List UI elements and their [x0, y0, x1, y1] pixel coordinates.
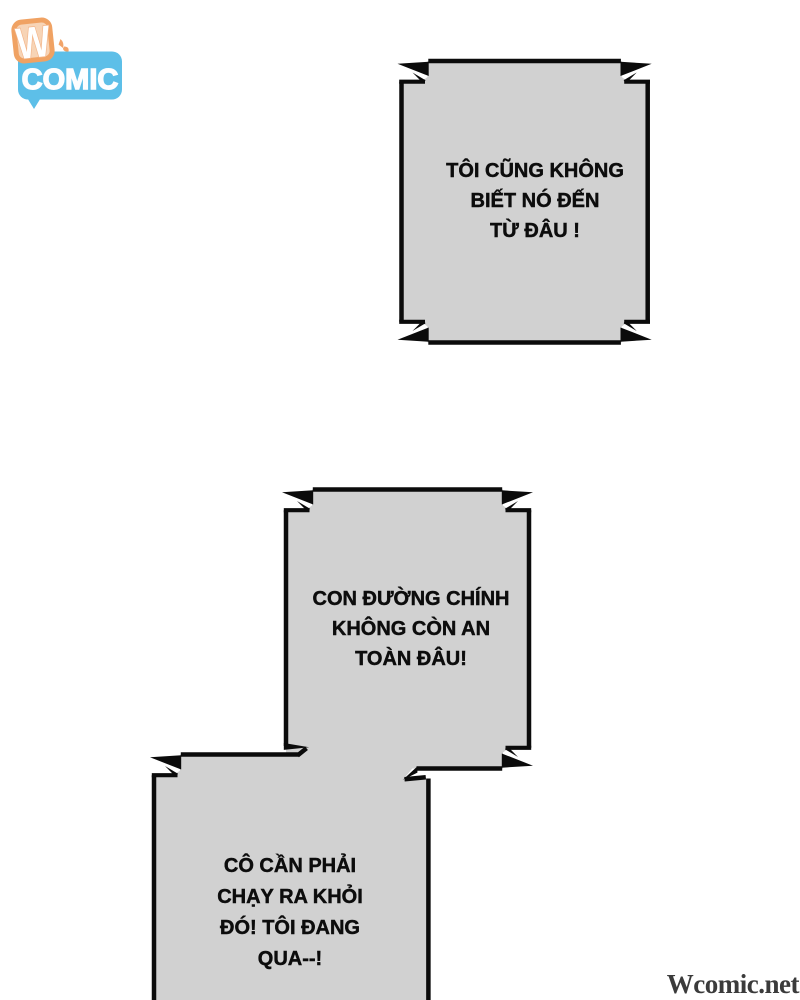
- svg-text:W: W: [14, 17, 53, 69]
- svg-text:COMIC: COMIC: [22, 64, 119, 96]
